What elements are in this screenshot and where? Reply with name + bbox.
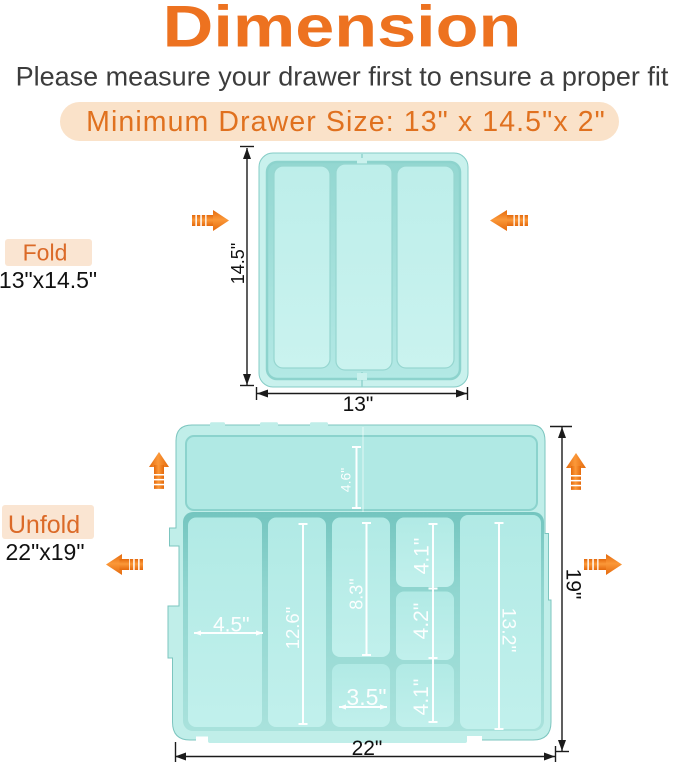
svg-text:19": 19" xyxy=(562,569,585,600)
svg-text:4.6": 4.6" xyxy=(338,468,354,492)
svg-text:Dimension: Dimension xyxy=(163,0,522,59)
svg-text:Minimum Drawer Size: 13" x 14.: Minimum Drawer Size: 13" x 14.5"x 2" xyxy=(86,106,606,138)
svg-text:12.6": 12.6" xyxy=(282,607,303,650)
svg-text:Unfold: Unfold xyxy=(8,511,80,539)
svg-text:13"x14.5": 13"x14.5" xyxy=(0,267,97,293)
svg-text:14.5": 14.5" xyxy=(228,243,248,284)
svg-text:Please measure your drawer fir: Please measure your drawer first to ensu… xyxy=(16,62,669,92)
svg-text:22": 22" xyxy=(352,737,383,760)
svg-text:22"x19": 22"x19" xyxy=(6,539,85,565)
svg-text:13.2": 13.2" xyxy=(498,608,520,653)
svg-text:4.1": 4.1" xyxy=(410,679,433,716)
svg-text:4.5": 4.5" xyxy=(213,614,250,637)
svg-text:4.2": 4.2" xyxy=(410,603,433,640)
svg-text:Fold: Fold xyxy=(23,240,68,266)
svg-text:4.1": 4.1" xyxy=(411,538,434,575)
svg-text:8.3": 8.3" xyxy=(347,578,367,609)
svg-text:13": 13" xyxy=(343,393,374,416)
svg-text:3.5": 3.5" xyxy=(346,684,386,710)
